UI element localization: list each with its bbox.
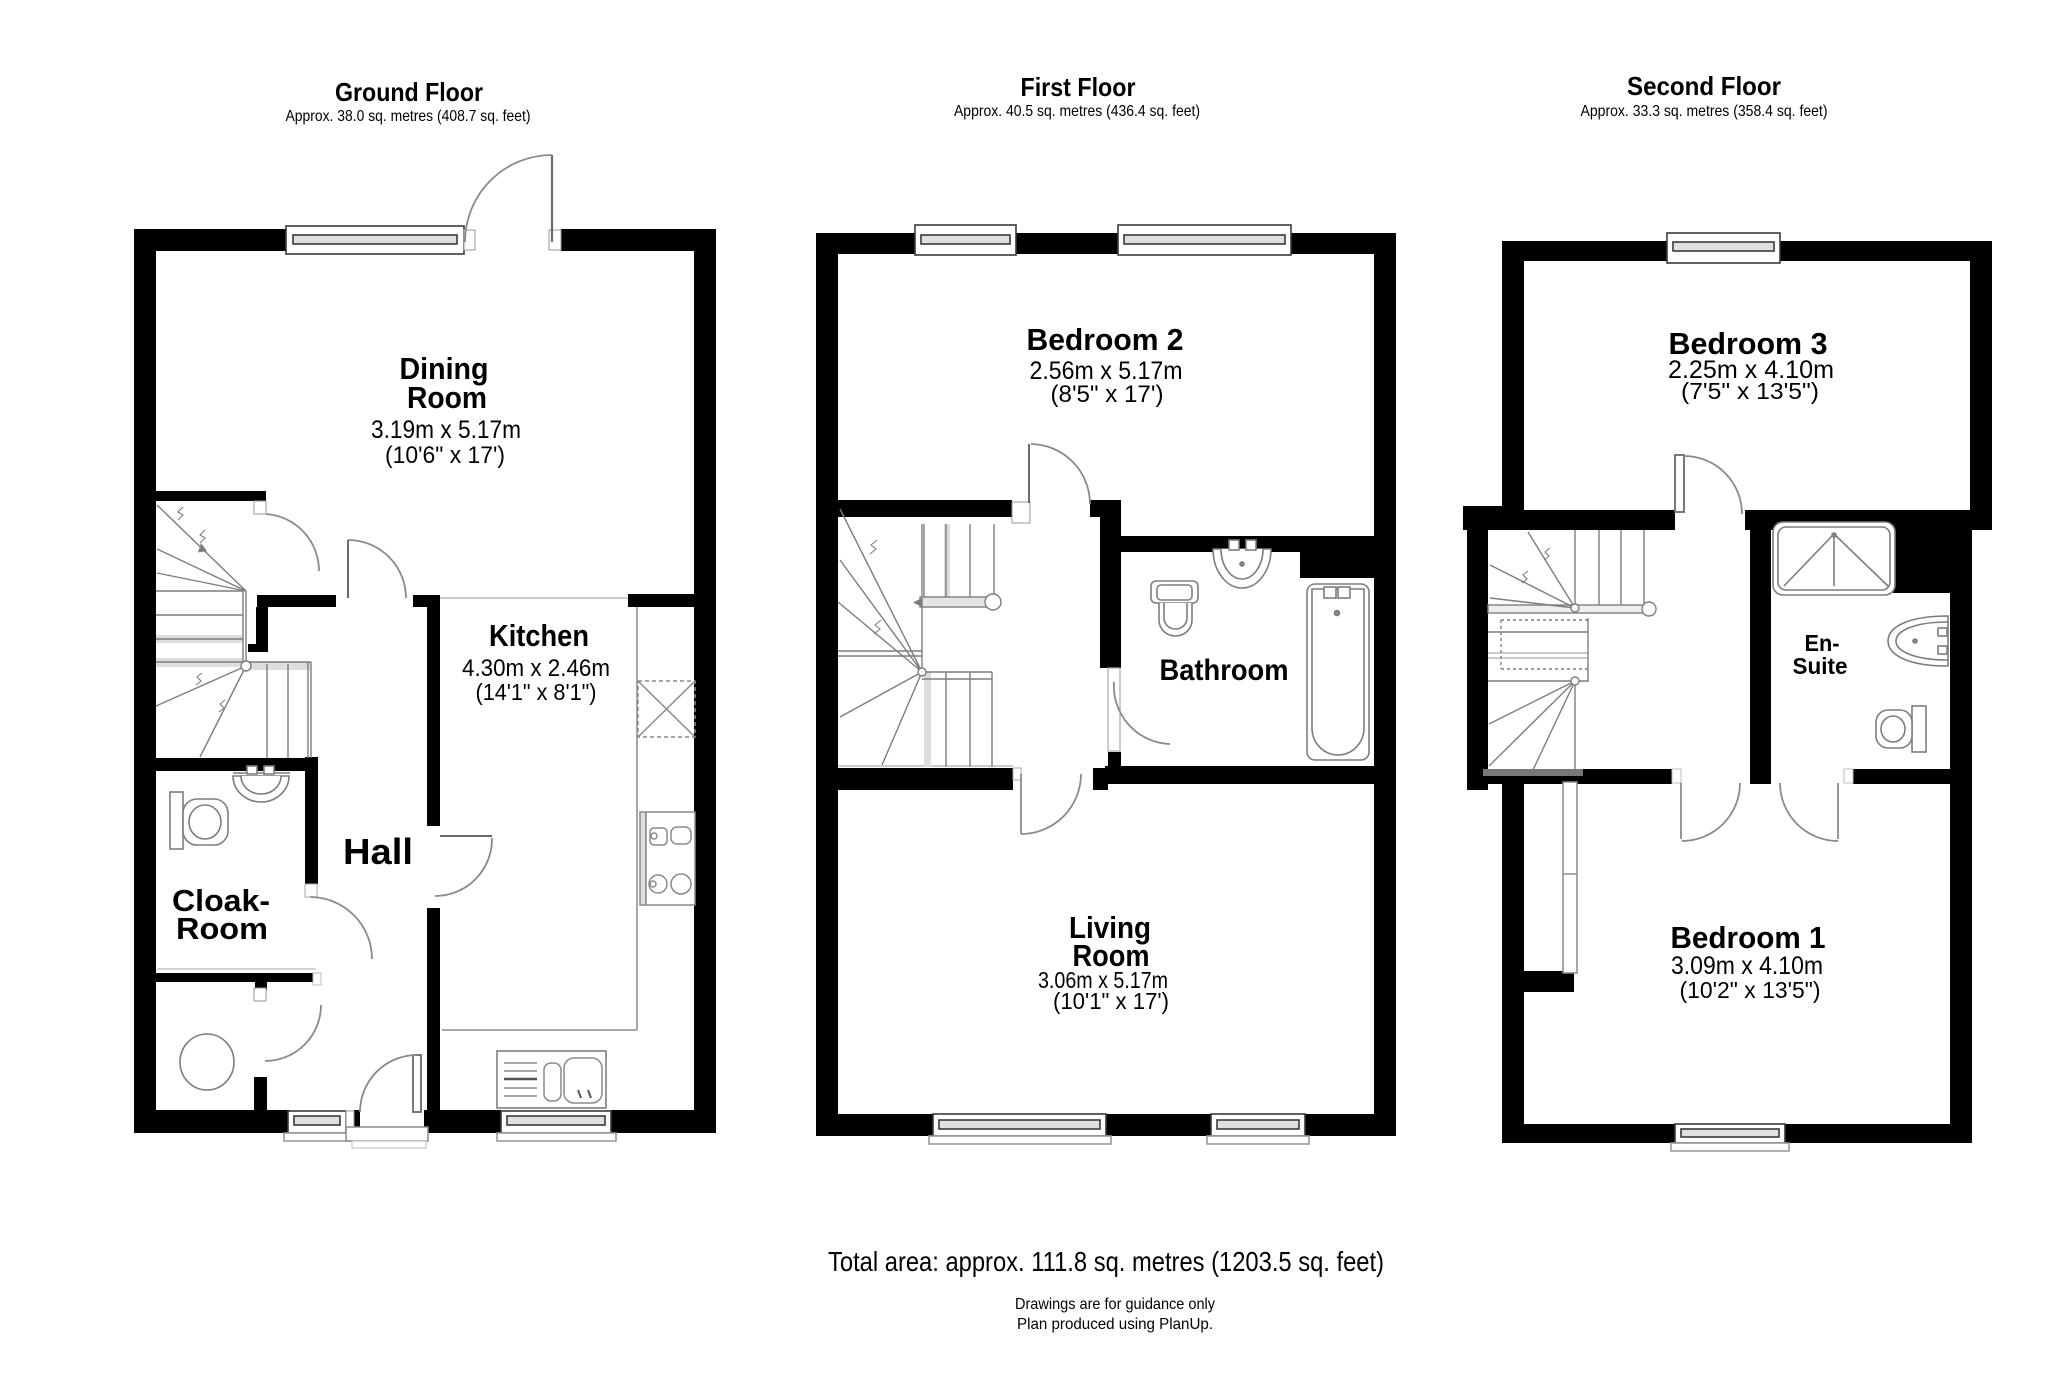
svg-text:Ground Floor: Ground Floor bbox=[335, 77, 483, 107]
svg-text:Suite: Suite bbox=[1793, 653, 1848, 679]
svg-text:Hall: Hall bbox=[343, 831, 413, 872]
svg-text:(10'1" x 17'): (10'1" x 17') bbox=[1053, 988, 1169, 1014]
svg-text:Approx. 38.0 sq. metres (408.7: Approx. 38.0 sq. metres (408.7 sq. feet) bbox=[286, 108, 531, 125]
svg-text:Kitchen: Kitchen bbox=[489, 618, 589, 653]
svg-text:Total area: approx. 111.8 sq.: Total area: approx. 111.8 sq. metres (12… bbox=[828, 1246, 1384, 1277]
svg-text:(14'1" x 8'1"): (14'1" x 8'1") bbox=[476, 679, 597, 705]
svg-text:(7'5" x 13'5"): (7'5" x 13'5") bbox=[1681, 378, 1819, 404]
svg-text:Room: Room bbox=[407, 380, 487, 415]
svg-text:(8'5" x 17'): (8'5" x 17') bbox=[1051, 381, 1164, 408]
svg-text:4.30m x 2.46m: 4.30m x 2.46m bbox=[462, 655, 610, 682]
svg-text:Second Floor: Second Floor bbox=[1627, 71, 1781, 101]
svg-text:3.09m x 4.10m: 3.09m x 4.10m bbox=[1671, 952, 1823, 980]
svg-text:Room: Room bbox=[176, 911, 268, 946]
svg-text:3.19m x 5.17m: 3.19m x 5.17m bbox=[371, 416, 521, 444]
svg-text:First Floor: First Floor bbox=[1021, 72, 1136, 102]
svg-text:Bedroom 1: Bedroom 1 bbox=[1671, 920, 1826, 955]
svg-text:Bathroom: Bathroom bbox=[1160, 654, 1289, 687]
svg-text:(10'6" x 17'): (10'6" x 17') bbox=[385, 442, 505, 469]
svg-text:Approx. 40.5 sq. metres (436.4: Approx. 40.5 sq. metres (436.4 sq. feet) bbox=[954, 103, 1200, 120]
svg-text:Bedroom 2: Bedroom 2 bbox=[1027, 322, 1184, 357]
svg-text:(10'2" x 13'5"): (10'2" x 13'5") bbox=[1680, 977, 1821, 1003]
svg-text:Plan produced using PlanUp.: Plan produced using PlanUp. bbox=[1017, 1316, 1213, 1333]
svg-text:Drawings are for guidance only: Drawings are for guidance only bbox=[1015, 1296, 1215, 1313]
svg-text:Approx. 33.3 sq. metres (358.4: Approx. 33.3 sq. metres (358.4 sq. feet) bbox=[1581, 103, 1828, 120]
